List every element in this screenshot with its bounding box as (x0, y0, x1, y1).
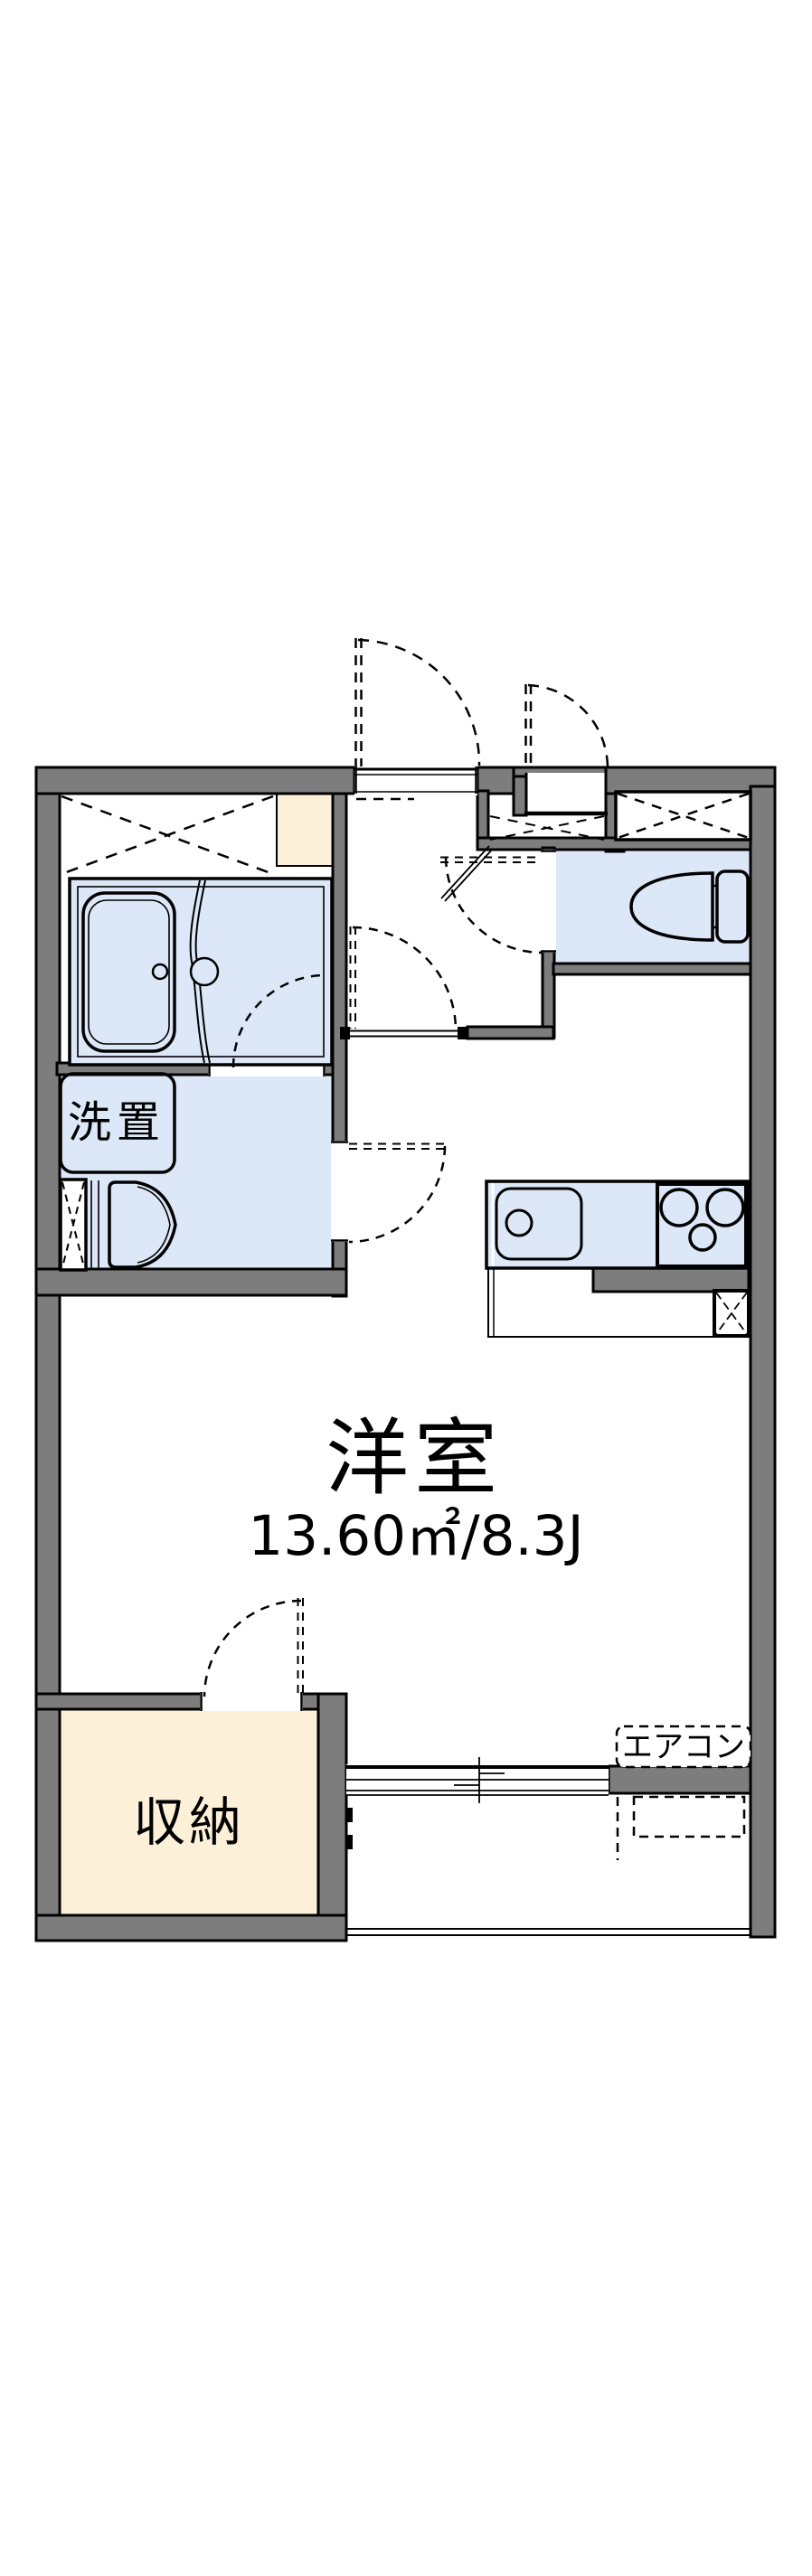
hall-door-swing (353, 927, 456, 1030)
aircon-unit: エアコン (617, 1726, 751, 1767)
closet-label: 収納 (133, 1791, 245, 1853)
shoe-cabinet (277, 794, 335, 866)
bathroom-unit (70, 879, 332, 1067)
wall-right (751, 786, 775, 1937)
entry-door-recess (526, 773, 606, 815)
wall-closet-right (318, 1694, 346, 1941)
main-room-size-label: 13.60㎡/8.3J (248, 1504, 583, 1568)
toilet-floor (553, 848, 751, 965)
wall-window-right (609, 1766, 751, 1793)
wall-left (36, 767, 60, 1941)
aircon-outdoor-unit (634, 1797, 744, 1837)
washer-place-label: 洗置 (68, 1097, 165, 1148)
washroom-door-swing (349, 1146, 445, 1242)
kitchen (486, 1181, 749, 1337)
wall-washroom-bottom (36, 1269, 346, 1295)
main-room-label: 洋室 (326, 1410, 503, 1507)
entry-door-swing (358, 640, 479, 766)
closet-door-opening (200, 1692, 303, 1711)
wall-hall-bottom (467, 1027, 553, 1039)
toilet-door-swing (446, 858, 543, 953)
closet-door-swing (204, 1601, 301, 1697)
washroom-door-opening (331, 1141, 348, 1242)
entrance-door-swing (528, 685, 608, 769)
floor-plan: エアコン 洋室 13.60㎡/8.3J 収納 洗置 (0, 0, 812, 2576)
floor-plan-page: エアコン 洋室 13.60㎡/8.3J 収納 洗置 (0, 0, 812, 2576)
wall-toilet-bottom (553, 964, 751, 974)
bath-faucet (191, 958, 218, 985)
toilet-door-opening (541, 850, 556, 953)
kitchen-counter (486, 1181, 749, 1268)
wall-top-left (36, 767, 354, 794)
wall-closet-bottom (36, 1915, 346, 1941)
aircon-label: エアコン (622, 1729, 745, 1765)
toilet-door-open (441, 846, 489, 898)
wall-kitchen-stub (593, 1267, 749, 1292)
